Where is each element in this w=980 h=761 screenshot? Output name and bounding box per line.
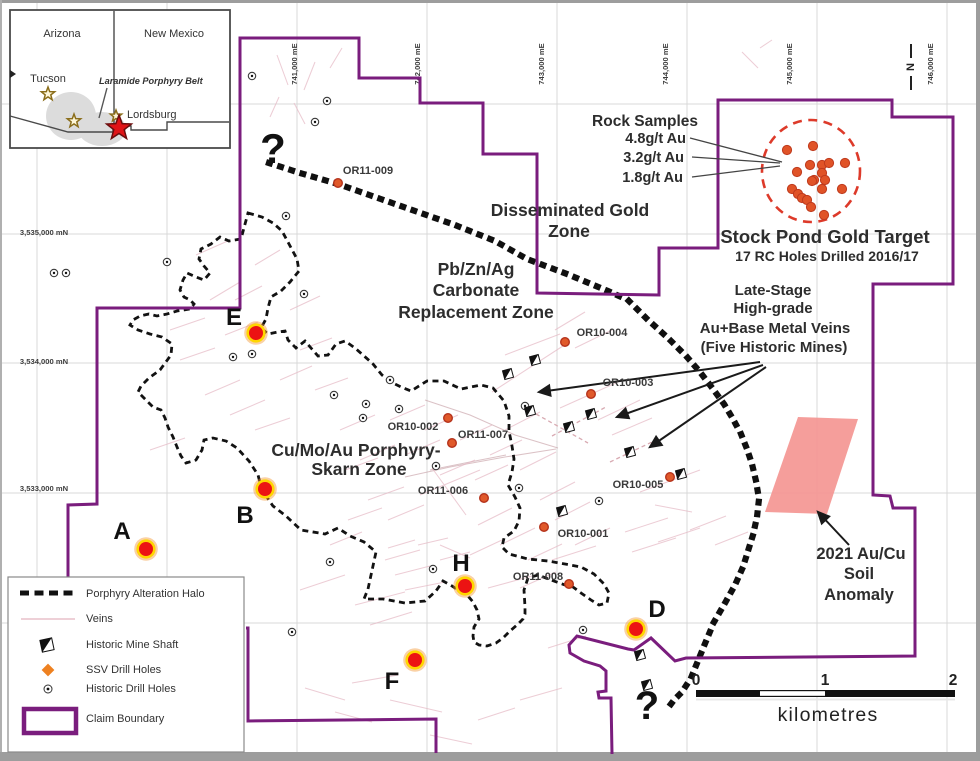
svg-text:A: A	[113, 518, 130, 545]
svg-text:B: B	[236, 502, 253, 529]
svg-text:Disseminated Gold: Disseminated Gold	[491, 200, 650, 220]
svg-text:Skarn Zone: Skarn Zone	[311, 459, 407, 479]
svg-text:Pb/Zn/Ag: Pb/Zn/Ag	[438, 259, 515, 279]
svg-text:3.2g/t Au: 3.2g/t Au	[623, 150, 684, 166]
svg-text:745,000 mE: 745,000 mE	[785, 43, 794, 84]
svg-text:Carbonate: Carbonate	[433, 280, 520, 300]
svg-text:3,533,000 mN: 3,533,000 mN	[20, 484, 68, 493]
svg-text:OR10-002: OR10-002	[388, 421, 439, 433]
svg-text:1: 1	[821, 672, 830, 689]
svg-text:Veins: Veins	[86, 613, 113, 625]
svg-text:Au+Base Metal Veins: Au+Base Metal Veins	[700, 320, 850, 337]
svg-text:3,534,000 mN: 3,534,000 mN	[20, 357, 68, 366]
svg-text:OR10-001: OR10-001	[558, 528, 609, 540]
svg-text:744,000 mE: 744,000 mE	[661, 43, 670, 84]
svg-text:4.8g/t Au: 4.8g/t Au	[625, 131, 686, 147]
svg-text:kilometres: kilometres	[778, 704, 879, 726]
svg-text:Arizona: Arizona	[43, 28, 81, 40]
svg-text:E: E	[226, 304, 242, 331]
svg-text:Lordsburg: Lordsburg	[127, 109, 177, 121]
svg-text:Historic Drill Holes: Historic Drill Holes	[86, 683, 176, 695]
svg-text:Tucson: Tucson	[30, 73, 66, 85]
svg-text:Zone: Zone	[548, 221, 590, 241]
svg-text:Laramide Porphyry Belt: Laramide Porphyry Belt	[99, 76, 204, 86]
svg-text:OR11-008: OR11-008	[513, 571, 563, 583]
svg-text:D: D	[648, 596, 665, 623]
svg-text:2021 Au/Cu: 2021 Au/Cu	[816, 545, 905, 563]
svg-text:F: F	[385, 668, 400, 695]
svg-text:Historic Mine Shaft: Historic Mine Shaft	[86, 639, 178, 651]
svg-text:SSV Drill Holes: SSV Drill Holes	[86, 664, 162, 676]
svg-text:Stock Pond Gold Target: Stock Pond Gold Target	[720, 226, 929, 247]
svg-text:3,535,000 mN: 3,535,000 mN	[20, 228, 68, 237]
svg-text:741,000 mE: 741,000 mE	[290, 43, 299, 84]
svg-text:Soil: Soil	[844, 565, 874, 583]
svg-text:17 RC Holes Drilled 2016/17: 17 RC Holes Drilled 2016/17	[735, 248, 919, 264]
svg-text:2: 2	[949, 672, 958, 689]
svg-text:0: 0	[692, 672, 701, 689]
svg-text:Anomaly: Anomaly	[824, 586, 895, 604]
svg-text:Porphyry Alteration Halo: Porphyry Alteration Halo	[86, 588, 205, 600]
svg-text:OR11-007: OR11-007	[458, 429, 508, 441]
svg-text:?: ?	[260, 125, 286, 172]
svg-text:H: H	[452, 550, 469, 577]
svg-text:New Mexico: New Mexico	[144, 28, 204, 40]
svg-text:OR11-006: OR11-006	[418, 485, 468, 497]
svg-text:Cu/Mo/Au Porphyry-: Cu/Mo/Au Porphyry-	[271, 440, 440, 460]
svg-text:(Five Historic Mines): (Five Historic Mines)	[701, 339, 848, 356]
svg-text:Claim Boundary: Claim Boundary	[86, 713, 165, 725]
svg-text:746,000 mE: 746,000 mE	[926, 43, 935, 84]
svg-text:1.8g/t Au: 1.8g/t Au	[622, 170, 683, 186]
svg-text:?: ?	[635, 684, 659, 728]
svg-text:OR10-003: OR10-003	[603, 377, 654, 389]
svg-text:High-grade: High-grade	[733, 300, 812, 317]
svg-text:OR11-009: OR11-009	[343, 165, 393, 177]
svg-text:Rock Samples: Rock Samples	[592, 113, 698, 130]
svg-text:OR10-005: OR10-005	[613, 479, 664, 491]
svg-text:Late-Stage: Late-Stage	[735, 282, 812, 299]
svg-text:OR10-004: OR10-004	[577, 327, 629, 339]
svg-text:N: N	[905, 63, 917, 71]
svg-text:Replacement Zone: Replacement Zone	[398, 302, 554, 322]
svg-text:743,000 mE: 743,000 mE	[537, 43, 546, 84]
